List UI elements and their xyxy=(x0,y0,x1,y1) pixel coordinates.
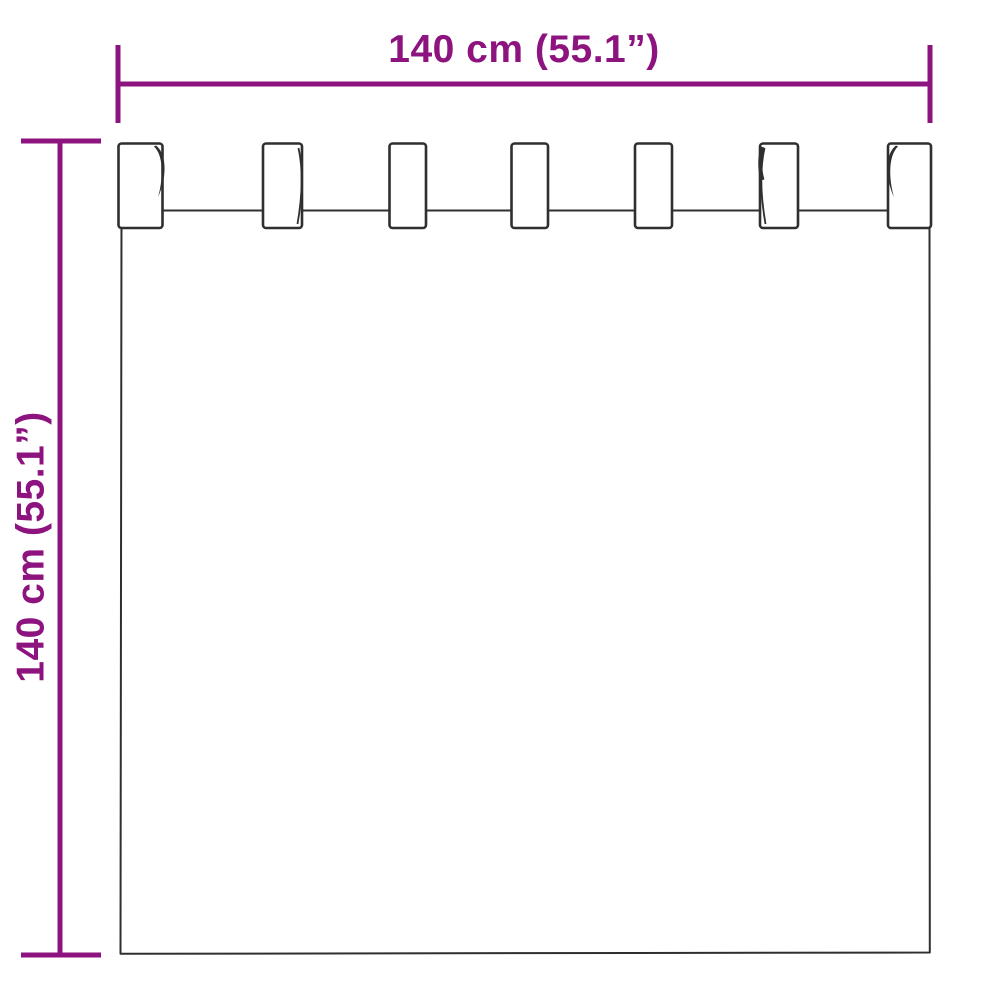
curtain-tab xyxy=(635,144,672,229)
curtain-illustration xyxy=(0,0,1000,1000)
dimension-diagram: 140 cm (55.1”) 140 cm (55.1”) xyxy=(0,0,1000,1000)
curtain-tab xyxy=(263,144,302,229)
height-dimension-label: 140 cm (55.1”) xyxy=(9,140,53,955)
curtain-tab xyxy=(888,144,931,229)
width-dimension-label: 140 cm (55.1”) xyxy=(118,28,930,72)
curtain-tab xyxy=(760,144,798,229)
curtain-panel-outline xyxy=(121,211,930,954)
curtain-tab xyxy=(119,144,163,229)
curtain-tab xyxy=(390,144,427,229)
curtain-panel xyxy=(121,211,930,954)
curtain-tab xyxy=(512,144,549,229)
